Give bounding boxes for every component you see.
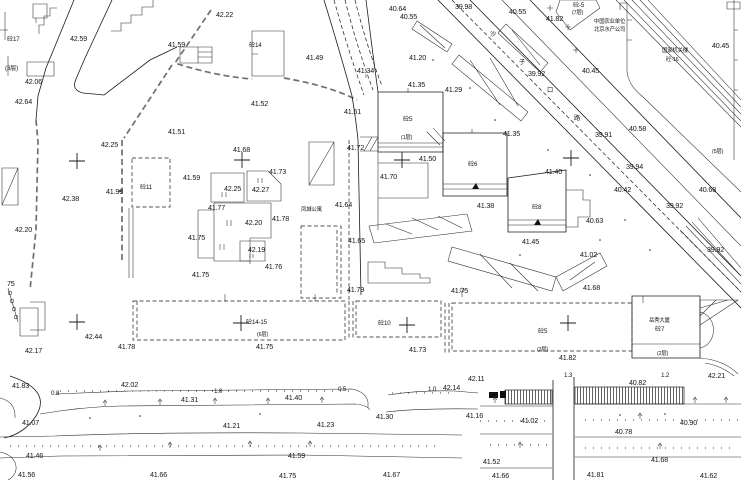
- spot-elevation: 41.59: [288, 451, 305, 460]
- spot-elevation: 39.92: [707, 245, 724, 254]
- site-plan-canvas: 42.22 42.59 42.06 42.64 41.59 41.51 42.2…: [0, 0, 741, 480]
- spot-elevation: 41.73: [269, 167, 286, 176]
- building-label: 砼5: [403, 115, 413, 123]
- spot-elevation: 40.42: [614, 185, 631, 194]
- site-plan-map: 42.22 42.59 42.06 42.64 41.59 41.51 42.2…: [0, 0, 741, 480]
- building-label: 砼8: [532, 203, 542, 211]
- fengcheng-cluster: [129, 142, 341, 298]
- storey-label: (1层): [401, 134, 413, 141]
- spot-elevation: 41.50: [419, 154, 436, 163]
- spot-elevation: 42.59: [70, 34, 87, 43]
- spot-elevation: 41.83: [12, 381, 29, 390]
- spot-elevation: 41.23: [317, 420, 334, 429]
- width-dimension: 1.0: [214, 388, 223, 395]
- tree-symbols: [98, 397, 728, 451]
- spot-elevation: 42.11: [468, 374, 485, 383]
- spot-elevation: 41.16: [466, 411, 483, 420]
- spot-elevation: 41.35: [503, 129, 520, 138]
- spot-elevation: 40.58: [629, 124, 646, 133]
- spot-elevation: 41.82: [546, 14, 563, 23]
- spot-elevation: 41.72: [347, 143, 364, 152]
- spot-elevation: 41.75: [188, 233, 205, 242]
- building-label: 砼-16: [666, 55, 679, 63]
- spot-elevation: 41.46: [26, 451, 43, 460]
- width-dimension: 1.0: [428, 386, 437, 393]
- spot-elevation: 41.70: [380, 172, 397, 181]
- sawtooth-structures: [368, 214, 607, 291]
- spot-elevation: 40.78: [615, 427, 632, 436]
- spot-elevation: 39.91: [595, 130, 612, 139]
- spot-elevation: 41.40: [545, 167, 562, 176]
- spot-elevation: 42.25: [101, 140, 118, 149]
- organization-label: 北京水产公司: [594, 25, 625, 33]
- spot-elevation: 39.98: [455, 2, 472, 11]
- spot-elevation: 41.76: [265, 262, 282, 271]
- spot-elevation: 41.59: [168, 40, 185, 49]
- spot-elevation: 41.51: [344, 107, 361, 116]
- spot-elevation: 41.30: [376, 412, 393, 421]
- spot-elevation: 41.31: [181, 395, 198, 404]
- spot-elevation: 42.64: [15, 97, 32, 106]
- spot-elevation: 41.51: [168, 127, 185, 136]
- spot-elevation: 42.14: [443, 383, 460, 392]
- storey-label: (5层): [712, 148, 724, 155]
- spot-elevation: 40.55: [400, 12, 417, 21]
- spot-elevation: 41.81: [587, 470, 604, 479]
- spot-elevation: 42.27: [252, 185, 269, 194]
- road-name-char: 沙: [490, 31, 496, 38]
- spot-elevation: 40.45: [712, 41, 729, 50]
- building-c-outline: [508, 170, 590, 232]
- spot-elevation: 41.68: [233, 145, 250, 154]
- spot-elevation: 41.75: [451, 286, 468, 295]
- road-name-char: 路: [574, 114, 581, 122]
- spot-elevation: 41.93: [106, 187, 123, 196]
- spot-elevation: 42.21: [708, 371, 725, 380]
- building-label: 砼5: [538, 327, 548, 335]
- building-label: 砼14: [249, 41, 262, 49]
- building-name: 凤城公寓: [301, 205, 322, 213]
- spot-elevation: 42.20: [15, 225, 32, 234]
- left-edge-structures: [2, 168, 45, 336]
- spot-elevation: 41.38: [477, 201, 494, 210]
- courtyard-walls: [378, 152, 428, 230]
- spot-elevation: 41.49: [306, 53, 323, 62]
- organization-label: 中国农业单位: [594, 17, 626, 25]
- spot-elevation: 41.75: [256, 342, 273, 351]
- road-name-char: 子: [519, 59, 525, 66]
- spot-elevation: 41.35: [408, 80, 425, 89]
- storey-label: (7层): [572, 9, 584, 16]
- spot-elevation: 41.21: [223, 421, 240, 430]
- spot-elevation: 41.59: [183, 173, 200, 182]
- storey-label: (2层): [657, 350, 669, 357]
- spot-elevation: 41.68: [583, 283, 600, 292]
- width-dimension: 1.3: [564, 372, 573, 379]
- storey-label: (3层): [5, 65, 18, 72]
- spot-elevation: 41.64: [335, 200, 352, 209]
- spot-elevation: 41.66: [492, 471, 509, 480]
- building-label: 砼7: [655, 325, 665, 333]
- survey-grid-crosses: [69, 150, 579, 333]
- spot-elevation-labels: 42.22 42.59 42.06 42.64 41.59 41.51 42.2…: [7, 2, 729, 480]
- spot-elevation: 42.25: [224, 184, 241, 193]
- spot-elevation: 40.45: [582, 66, 599, 75]
- building-name: 岳秀大厦: [649, 316, 671, 324]
- survey-point-dots: [89, 59, 666, 419]
- spot-elevation: 42.20: [245, 218, 262, 227]
- spot-elevation: 41.62: [700, 471, 717, 480]
- spot-elevation: 41.40: [285, 393, 302, 402]
- spot-elevation: 41.82: [559, 353, 576, 362]
- spot-elevation: 40.90: [680, 418, 697, 427]
- spot-elevation: 42.17: [25, 346, 42, 355]
- building-label: 砼14-15: [246, 318, 268, 326]
- spot-elevation: 41.52: [483, 457, 500, 466]
- spot-elevation: 41.56: [18, 470, 35, 479]
- spot-elevation: 41.65: [348, 236, 365, 245]
- spot-elevation: 39.92: [528, 69, 545, 78]
- spot-elevation: 41.34: [357, 66, 374, 75]
- storey-label: (6层): [257, 331, 269, 338]
- name-labels: 砼17 (3层) 砼14 砼-5 (7层) 中国农业单位 北京水产公司 国家机关…: [5, 1, 724, 357]
- spot-elevation: 40.82: [629, 378, 646, 387]
- spot-elevation: 41.75: [192, 270, 209, 279]
- spot-elevation: 41.02: [521, 416, 538, 425]
- spot-elevation: 41.77: [208, 203, 225, 212]
- bottom-buildings: [133, 288, 738, 376]
- spot-elevation: 39.94: [626, 162, 643, 171]
- spot-elevation: 41.52: [251, 99, 268, 108]
- spot-elevation: 41.45: [522, 237, 539, 246]
- spot-elevation: 41.73: [409, 345, 426, 354]
- spot-elevation: 39.92: [666, 201, 683, 210]
- organization-label: 国家机关楼: [662, 46, 689, 54]
- spot-elevation: 42.38: [62, 194, 79, 203]
- topleft-road-lines: [0, 0, 177, 290]
- spot-elevation: 42.19: [248, 245, 265, 254]
- building-label: 砼11: [140, 183, 153, 191]
- spot-elevation: 41.20: [409, 53, 426, 62]
- spot-elevation: 41.02: [580, 250, 597, 259]
- spot-elevation: 41.66: [150, 470, 167, 479]
- spot-elevation: 41.67: [383, 470, 400, 479]
- width-dimension: 0.5: [338, 386, 347, 393]
- spot-elevation: 40.68: [699, 185, 716, 194]
- spot-elevation: 75: [7, 279, 15, 288]
- building-label: 砼-5: [573, 1, 585, 9]
- spot-elevation: 41.29: [445, 85, 462, 94]
- block-boundary-fence: [122, 10, 357, 263]
- spot-elevation: 41.07: [22, 418, 39, 427]
- spot-elevation: 40.63: [586, 216, 603, 225]
- spot-elevation: 41.75: [279, 471, 296, 480]
- spot-elevation: 42.44: [85, 332, 102, 341]
- building-label: 砼17: [7, 35, 20, 43]
- spot-elevation: 40.55: [509, 7, 526, 16]
- spot-elevation: 41.68: [651, 455, 668, 464]
- spot-elevation: 42.22: [216, 10, 233, 19]
- building-label: 砼10: [378, 319, 391, 327]
- spot-elevation: 42.02: [121, 380, 138, 389]
- spot-elevation: 42.06: [25, 77, 42, 86]
- spot-elevation: 41.79: [347, 285, 364, 294]
- diagonal-road-lines: [438, 0, 741, 308]
- storey-label: (3层): [537, 346, 549, 353]
- width-dimension: 0.8: [51, 390, 60, 397]
- spot-elevation: 41.78: [118, 342, 135, 351]
- building-label: 砼6: [468, 160, 478, 168]
- road-name-char: 口: [547, 87, 553, 94]
- width-dimension: 1.2: [661, 372, 670, 379]
- spot-elevation: 41.78: [272, 214, 289, 223]
